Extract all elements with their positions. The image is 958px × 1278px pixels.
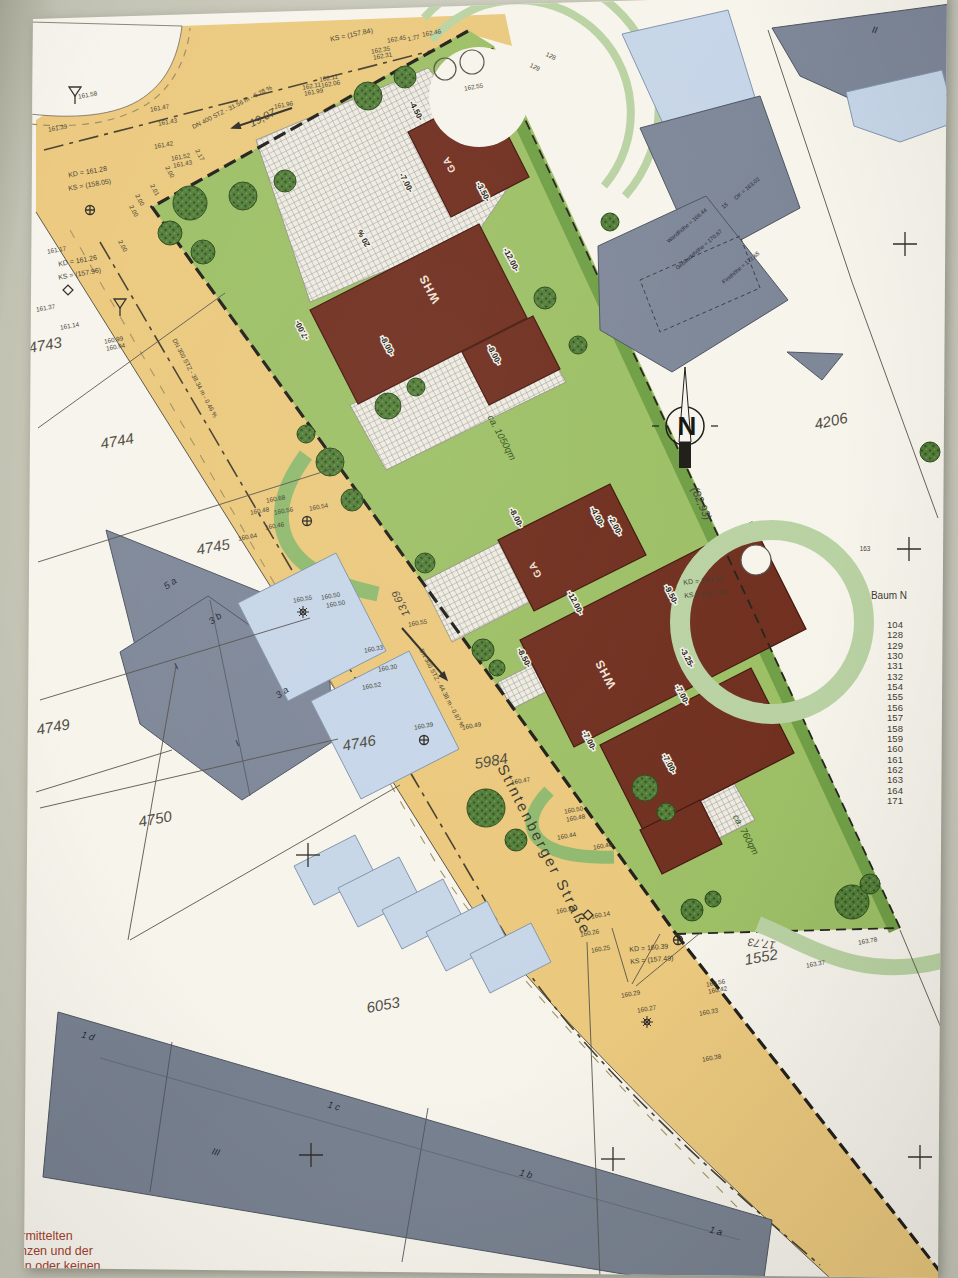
paper-light-overlay xyxy=(24,0,947,1278)
photo-of-cadastral-site-plan: N Stintenberger Straße Baum N 1041281291… xyxy=(0,0,958,1278)
site-plan-svg: N Stintenberger Straße Baum N 1041281291… xyxy=(0,0,958,1278)
plan-drawing: N Stintenberger Straße Baum N 1041281291… xyxy=(0,0,958,1278)
